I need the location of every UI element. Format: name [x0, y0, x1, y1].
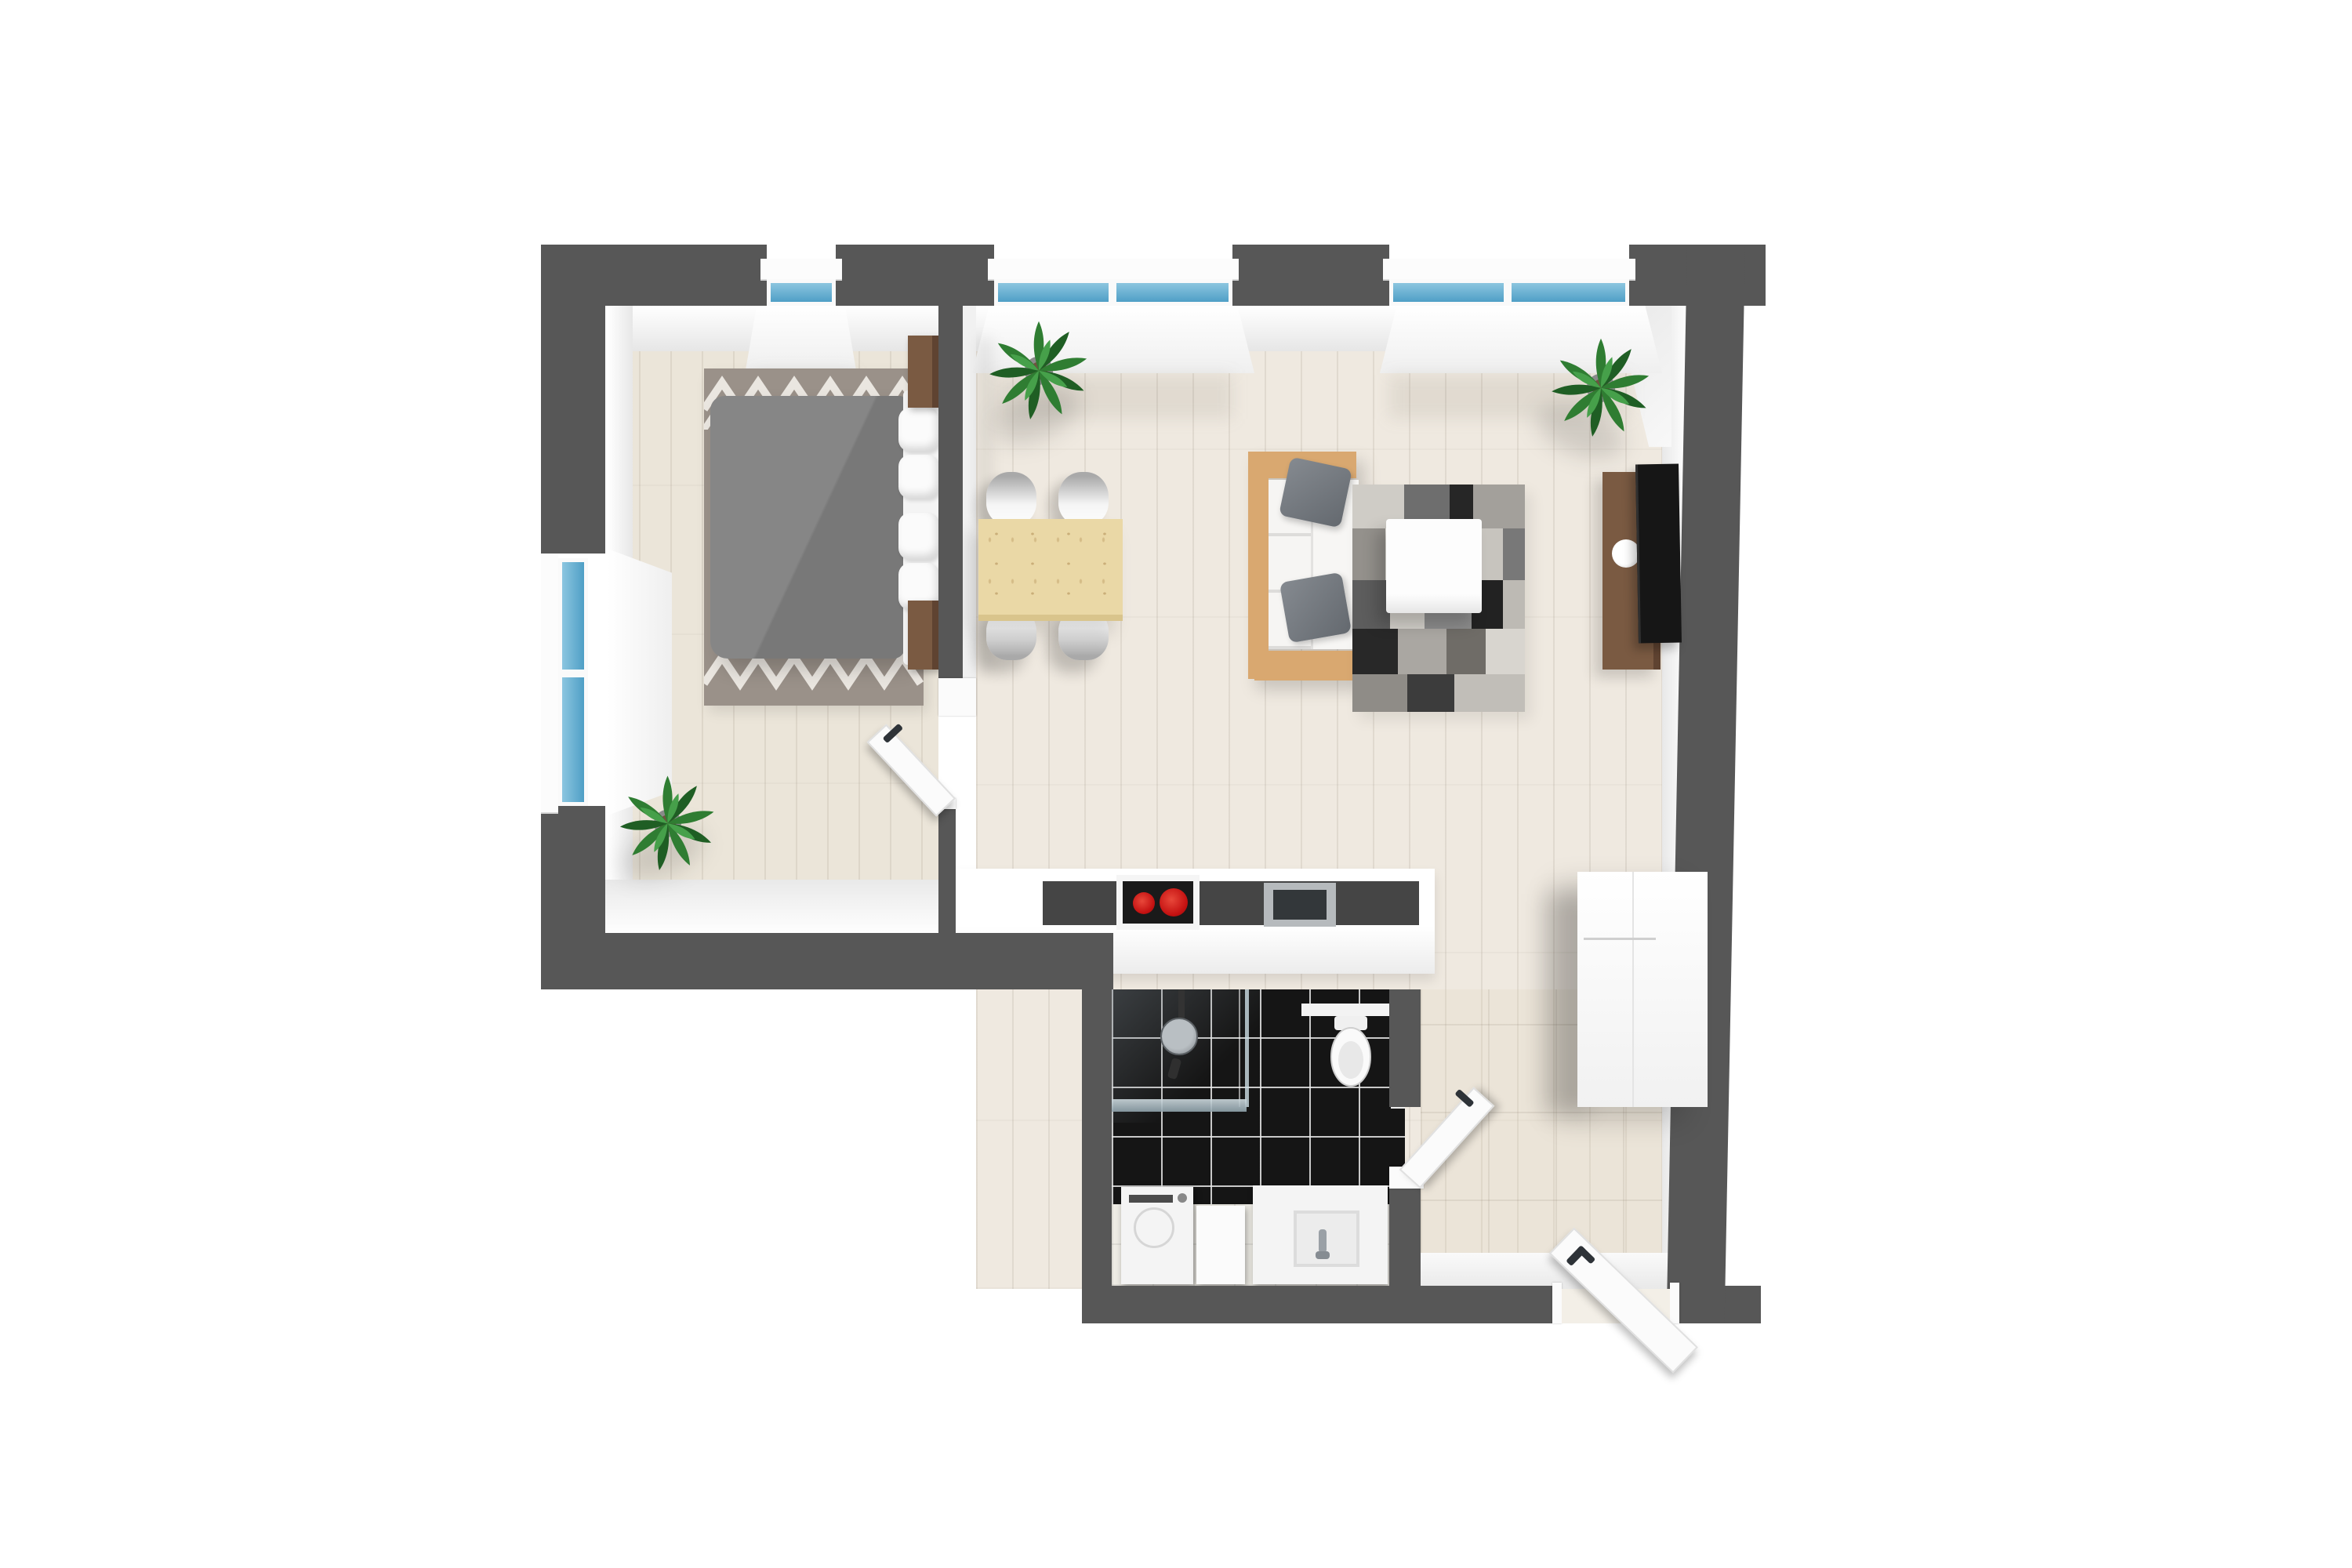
sofa-throw-pillow	[1279, 572, 1352, 644]
divider-wall-end-cap	[938, 678, 976, 716]
potted-plant-dining	[984, 314, 1094, 423]
nightstand-bottom	[908, 601, 939, 670]
window-mullion	[1109, 279, 1116, 306]
dining-table	[978, 519, 1123, 621]
rug-cell	[1503, 528, 1525, 580]
tv-screen	[1635, 464, 1682, 644]
dining-chair	[1058, 472, 1109, 525]
floor-plan-canvas	[0, 0, 2352, 1568]
window-mullion	[1504, 279, 1512, 306]
potted-plant-bedroom	[615, 768, 720, 874]
bedroom-left-window-cap	[541, 554, 558, 814]
nightstand-top	[908, 336, 939, 408]
rug-cell	[1352, 580, 1390, 629]
rug-cell	[1454, 674, 1525, 712]
bottom-wall	[1082, 1286, 1552, 1323]
cooktop-burner	[1133, 892, 1155, 914]
rug-cell	[1407, 674, 1454, 712]
bed-pillow	[898, 455, 939, 499]
vanity-faucet	[1319, 1229, 1327, 1253]
toilet	[1327, 1014, 1375, 1088]
rug-cell	[1398, 629, 1446, 674]
rug-cell	[1352, 528, 1385, 580]
shower-glass-inner-line	[1239, 989, 1240, 1107]
bathroom-vanity	[1253, 1185, 1388, 1284]
rug-cell	[1446, 629, 1486, 674]
bedroom-south-wall	[541, 933, 1113, 989]
entry-door-jamb	[1670, 1283, 1679, 1323]
washing-machine	[1121, 1187, 1193, 1284]
shower-head	[1160, 1018, 1198, 1055]
bed-pillow	[898, 408, 939, 452]
dining-chair	[986, 472, 1036, 525]
bedroom-left-window	[558, 558, 588, 806]
bed-pillow	[898, 513, 939, 560]
window-mullion	[558, 670, 588, 677]
rug-cell	[1352, 629, 1398, 674]
sofa	[1248, 452, 1362, 684]
bedroom-top-window-cap	[760, 259, 842, 281]
coffee-table	[1386, 519, 1482, 613]
kitchen-countertop	[1043, 881, 1419, 925]
living-top-left-window-cap	[988, 259, 1239, 281]
wardrobe-seam	[1632, 872, 1634, 1107]
divider-wall-stub	[938, 809, 956, 933]
bathroom-right-wall-upper	[1389, 989, 1421, 1107]
sofa-frame-bottom	[1254, 651, 1356, 681]
top-wall-segment	[541, 245, 767, 306]
bathroom-right-wall-lower	[1389, 1189, 1421, 1286]
kitchen-sink-basin	[1273, 890, 1327, 920]
top-wall-segment	[836, 245, 994, 306]
shower-glass-shelf	[1112, 1099, 1247, 1112]
bathroom-left-wall	[1082, 989, 1112, 1323]
divider-wall	[938, 306, 963, 678]
shower-glass-panel	[1245, 989, 1249, 1107]
washer-knob	[1178, 1193, 1187, 1203]
left-wall-upper	[541, 306, 605, 554]
living-top-right-window-cap	[1383, 259, 1635, 281]
bed-duvet	[710, 396, 905, 659]
rug-cell	[1503, 580, 1525, 629]
bedroom-window-recess	[746, 306, 856, 370]
washer-detail-slot	[1129, 1195, 1173, 1203]
sofa-frame-left	[1248, 452, 1269, 679]
bedroom-south-wall-inner-face	[586, 880, 938, 935]
potted-plant-living	[1546, 331, 1656, 441]
entry-door-jamb	[1552, 1283, 1562, 1323]
top-wall-segment	[1232, 245, 1389, 306]
wardrobe	[1577, 872, 1708, 1107]
bedroom-top-window	[767, 279, 836, 306]
wardrobe-handle-groove	[1584, 938, 1656, 940]
rug-cell	[1486, 629, 1525, 674]
divider-wall-inner-face	[963, 306, 976, 678]
rug-cell	[1352, 674, 1407, 712]
sofa-throw-pillow	[1279, 457, 1352, 528]
washer-door-ring	[1134, 1207, 1174, 1248]
cooktop-burner	[1160, 888, 1188, 916]
bathroom-divider-cabinet	[1196, 1206, 1245, 1284]
vanity-faucet-head	[1316, 1251, 1330, 1259]
decor-bowl	[1612, 539, 1640, 568]
